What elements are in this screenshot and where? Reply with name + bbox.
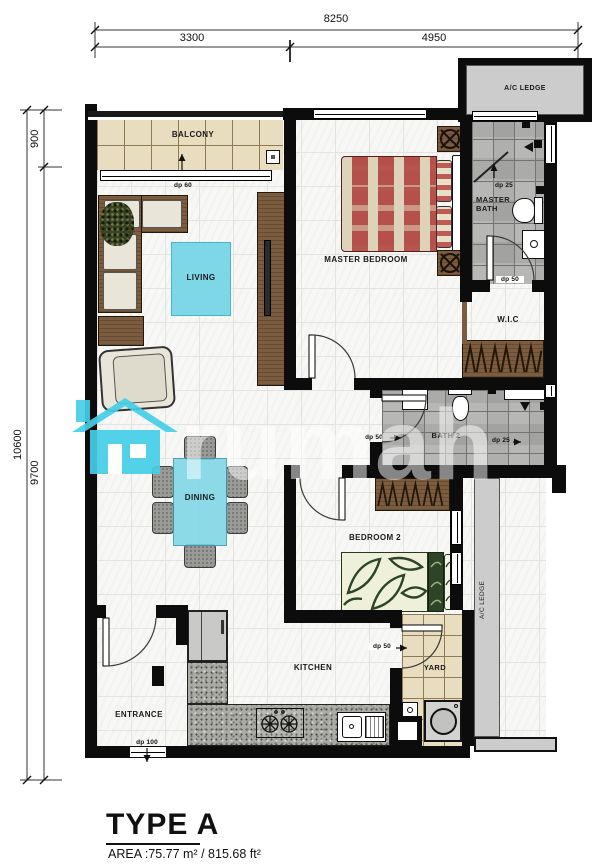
sink-drain [413,395,418,400]
room-label-entrance: ENTRANCE [106,710,172,719]
dim-left-main: 9700 [29,443,43,503]
sink-drainboard [365,716,384,738]
fridge-door-line [201,612,202,660]
nightstand-x-icon [438,251,462,275]
wall-master-south-right [354,378,544,390]
dim-top-total: 8250 [316,13,356,25]
room-label-living: LIVING [171,273,231,282]
armchair-seat [112,353,167,405]
drain-dot [271,155,275,159]
tv [264,240,271,316]
pillow [436,206,452,248]
dining-chair [152,466,174,498]
leaf-pattern [429,553,443,611]
wall-entrance-north-left [85,605,106,618]
dim-top-right: 4950 [414,32,454,44]
dp-label-bath2-shower: dp 25 [488,437,514,444]
hanger-icons [463,341,543,377]
basin-drain [407,707,413,713]
wall-hall-bedroom2-left [284,465,300,478]
area-label: AREA :75.77 m² / 815.68 ft² [108,847,348,861]
dining-chair [184,436,216,460]
dp-label-master-bath-door: dp 50 [496,276,524,283]
kitchen-sink [337,712,386,742]
wall-left [85,104,97,758]
wall-master-south-left [284,378,312,390]
wall-kitchen-yard-top [390,610,402,628]
dim-top-left: 3300 [172,32,212,44]
dp-label-entrance: dp 100 [130,739,164,746]
plant [100,202,134,246]
hanger-icons [376,479,449,510]
washer-drum [430,708,457,735]
fridge [187,610,228,662]
toilet-tank [534,197,543,224]
washer-knob [454,704,458,708]
type-title-underline [106,843,200,845]
wic-wardrobe [462,340,544,378]
dp-label-yard-door: dp 50 [368,643,396,650]
wall-entrance-stub [152,666,164,686]
room-label-bedroom2: BEDROOM 2 [338,533,412,542]
toilet-bowl [452,396,469,421]
shower-head-icon [520,402,530,411]
wall-entrance-kitchen [176,605,188,645]
wall-living-master [284,118,296,390]
ac-ledge-platform [474,737,557,752]
bedroom2-wardrobe [375,478,450,511]
room-label-dining: DINING [173,493,227,502]
wall-masterbath-wic-left [472,280,490,292]
dp-label-bath2-door: dp 50 [360,434,388,441]
bath-accessory [534,140,542,148]
balcony-floor [97,118,283,170]
balcony-parapet [88,111,290,120]
dining-chair [226,466,248,498]
bedroom2-bed-blanket [341,552,428,612]
wall-bath2-west-top [370,390,382,398]
room-label-bath2: BATH 2 [426,432,466,441]
dim-left-top: 900 [29,122,43,156]
bath2-toilet [446,386,474,422]
sink-drain [530,240,538,248]
bath-accessory [536,186,544,194]
master-bath-window [545,124,556,164]
wall-bedroom2-south [284,610,402,623]
room-label-kitchen: KITCHEN [282,663,344,672]
sofa-cushion [103,272,137,310]
leaf-pattern [342,553,427,611]
nightstand-x-icon [438,127,462,151]
dim-left-total: 10600 [12,412,26,478]
ac-ledge-vent [472,111,538,121]
wall-corner-bath2 [552,465,566,493]
shower-head-icon [524,142,533,152]
room-label-ac-ledge-top: A/C LEDGE [466,85,584,93]
bedroom2-window [451,510,462,545]
armchair [98,345,176,412]
balcony-drain [266,150,280,164]
pillow [436,160,452,202]
balcony-sliding-door [100,170,272,181]
room-label-ac-ledge-side: A/C LEDGE [479,560,495,640]
kitchen-counter-vertical [187,662,228,704]
sofa-cushion [142,200,182,228]
wall-master-bath-west [460,108,472,302]
dining-chair [226,502,248,534]
room-label-wic: W.I.C [488,315,528,324]
bedroom2-bed-runner [428,552,444,612]
wall-masterbath-wic-right [532,280,544,292]
room-label-yard: YARD [418,664,452,673]
dp-label-master-bath-shower: dp 25 [490,182,518,189]
room-label-master-bath: MASTER BATH [476,196,522,213]
master-bedroom-window [313,109,427,119]
room-label-balcony: BALCONY [158,130,228,139]
dp-label-balcony: dp 60 [168,182,198,189]
dining-chair [184,544,216,568]
wic-partition [462,302,467,344]
wall-dining-bedroom2 [284,478,296,610]
floor-plan-page: { "meta": { "type_label": "TYPE A", "are… [0,0,603,866]
wall-bath2-west-bottom [370,442,382,466]
side-cabinet [98,316,144,346]
washing-machine [424,700,462,742]
master-bath-sink [522,230,545,259]
wall-hall-bedroom2-right [342,465,566,478]
bath2-window [545,384,556,398]
wall-yard-east [462,610,474,746]
room-label-master-bedroom: MASTER BEDROOM [296,255,436,264]
sink-drain [349,724,354,729]
dining-chair [152,502,174,534]
burner-icons [257,709,302,736]
stove [256,708,304,738]
fridge-handle [221,620,224,634]
entrance-opening [130,747,166,757]
type-title: TYPE A [106,808,326,842]
bedroom2-window [451,552,462,585]
yard-chunk-notch [398,722,417,740]
master-bed-blanket [341,156,437,252]
